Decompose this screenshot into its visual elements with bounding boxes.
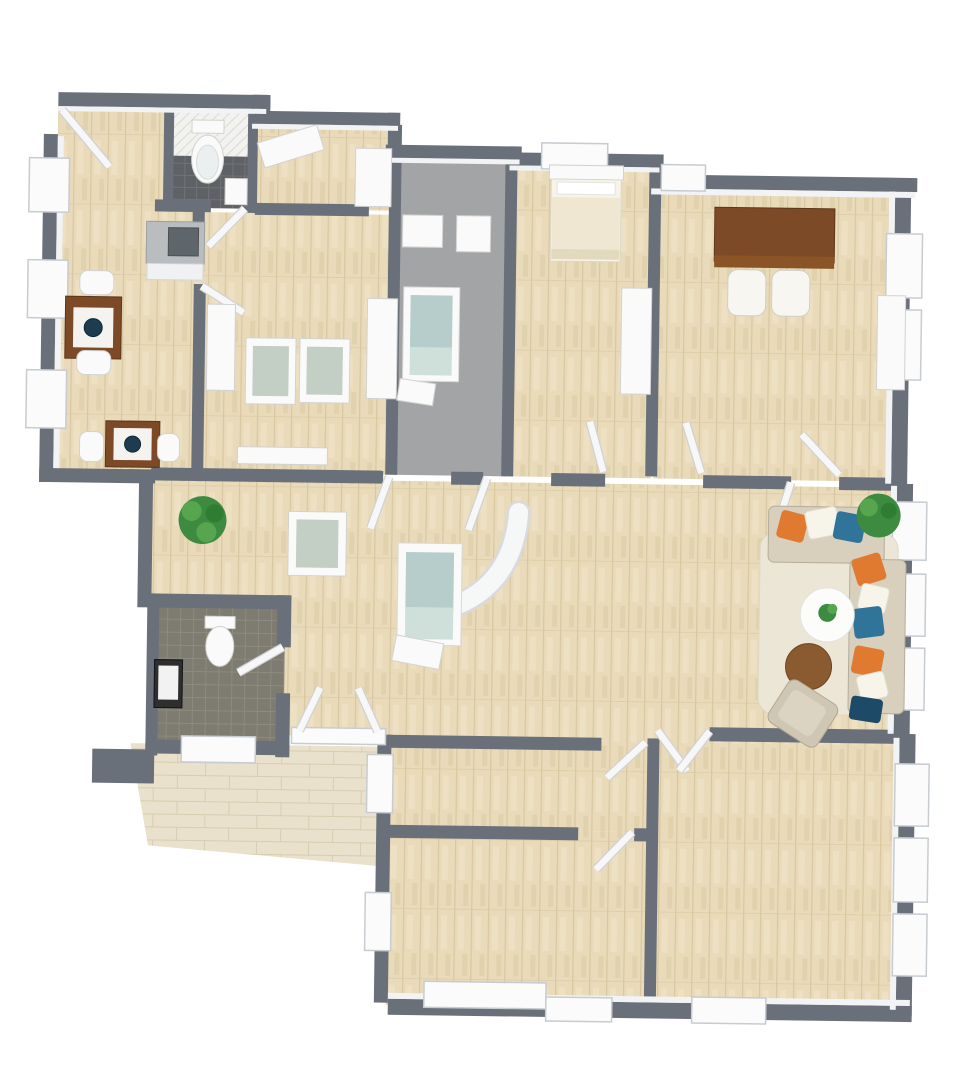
wall-mid-b <box>451 472 483 485</box>
window-bath2-south <box>181 736 255 763</box>
door-bottomright-south <box>692 997 766 1024</box>
floor-plan-svg <box>0 0 969 1080</box>
table-topright <box>714 207 835 263</box>
monitor-2 <box>124 436 140 452</box>
utility-bench-1 <box>402 215 442 248</box>
chair-4 <box>157 433 179 461</box>
chair-2 <box>77 350 111 374</box>
window-bottomright-east-3 <box>892 914 927 976</box>
fireplace-glass-low <box>405 607 453 640</box>
wall-top-e <box>386 145 522 160</box>
wall-wing-bottom <box>39 468 155 484</box>
bed-headboard <box>549 165 623 180</box>
shower-unit-glass-low <box>410 347 452 376</box>
wall-nook-south <box>255 203 369 217</box>
window-bottomleft-west <box>365 892 392 950</box>
cabinet-topright-east <box>876 296 905 390</box>
basin-lower <box>158 666 178 700</box>
glass-floor-3 <box>296 519 339 568</box>
window-west-2 <box>27 260 68 319</box>
window-topright-east-1 <box>886 234 923 298</box>
floor-plan-stage <box>0 0 969 1080</box>
window-bottomright-east-1 <box>894 764 929 826</box>
bed-pillow <box>557 182 615 195</box>
wall-mid-c <box>551 473 605 487</box>
wall-bottomrooms-west-b <box>375 813 390 899</box>
sink-top <box>225 178 247 204</box>
wall-terrace-stub <box>92 749 154 784</box>
wall-bath2-south-b <box>253 741 289 756</box>
toilet-top-seat <box>196 145 218 179</box>
window-bottomleft-south-1 <box>424 981 546 1009</box>
window-west-1 <box>29 158 70 213</box>
wall-mid-d <box>703 475 791 489</box>
pillow-teal-2 <box>851 606 885 640</box>
threshold-terrace-doors <box>291 727 385 744</box>
wall-wc-west <box>163 110 174 212</box>
wardrobe-2 <box>366 298 397 398</box>
kitchenette-front <box>147 263 203 280</box>
monitor-1 <box>84 318 102 336</box>
floor-bottomright-room <box>654 738 904 1011</box>
window-bottomleft-south-2 <box>546 997 612 1022</box>
toilet-top-tank <box>192 120 224 133</box>
window-topright-top <box>661 164 705 191</box>
wall-bath2-north <box>147 593 289 609</box>
glass-floor-1 <box>252 346 289 396</box>
fireplace-glass <box>405 552 454 613</box>
table-topright-front <box>714 255 834 269</box>
glass-floor-2 <box>306 347 343 395</box>
bedroom-wardrobe <box>620 288 651 394</box>
wall-bottomrooms-west-c <box>374 951 389 1003</box>
window-bottomright-east-2 <box>893 838 928 902</box>
utility-bench-2 <box>456 216 490 252</box>
chair-6 <box>771 270 810 317</box>
chair-1 <box>80 270 114 294</box>
sideboard-glassroom <box>237 447 327 465</box>
floor-plan-root <box>18 92 939 1027</box>
wall-top-c <box>252 111 400 126</box>
pillow-navy-1 <box>848 695 883 724</box>
bed-blanket-fold <box>551 249 619 260</box>
floor-terrace-deck <box>129 743 388 867</box>
chair-3 <box>79 431 103 461</box>
bed-blanket <box>551 197 620 254</box>
wardrobe-1 <box>206 304 235 390</box>
wall-strip-south-a <box>386 825 578 841</box>
window-strip-west <box>366 754 393 812</box>
kitchenette-sink <box>168 228 198 256</box>
wall-bath2-east-a <box>277 595 292 647</box>
shower-unit-glass <box>410 295 453 352</box>
chair-5 <box>727 269 766 316</box>
wall-top-a <box>58 92 270 109</box>
nook-cabinet <box>355 148 392 206</box>
window-west-3 <box>26 370 67 429</box>
toilet-lower-bowl <box>205 626 234 666</box>
wall-hall-west <box>137 475 153 607</box>
